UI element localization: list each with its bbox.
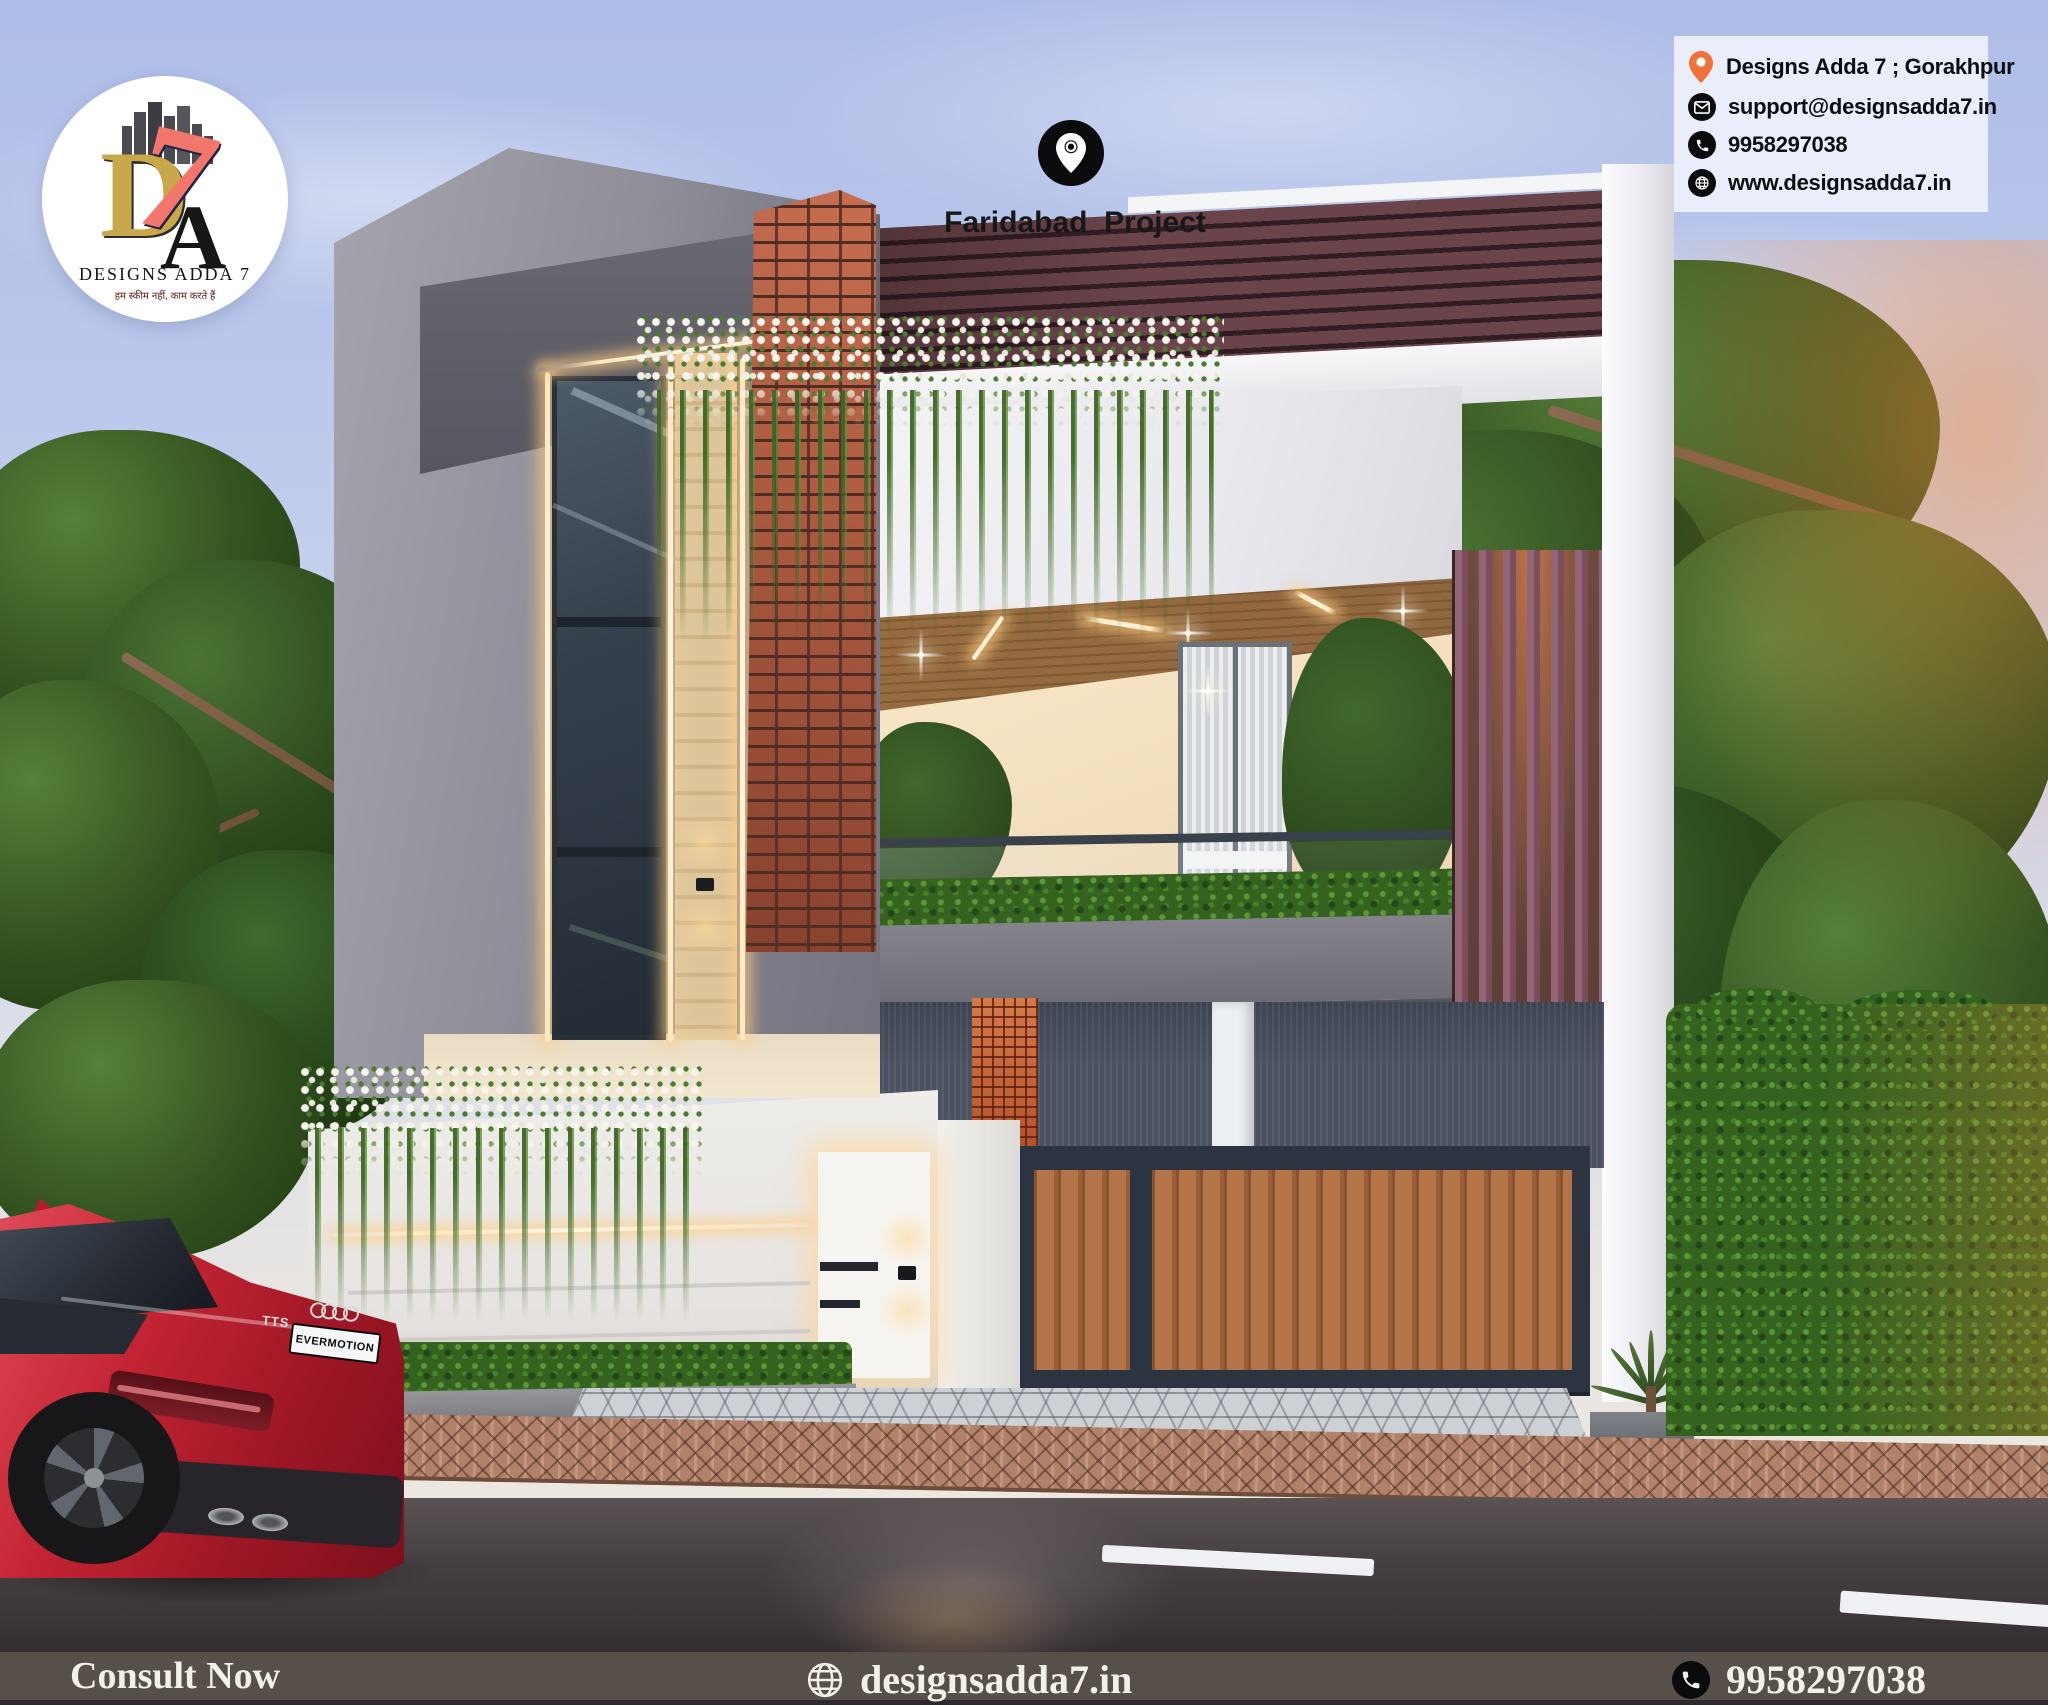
footer-website[interactable]: designsadda7.in (806, 1656, 1132, 1703)
project-pin-badge (1038, 120, 1104, 186)
window-led-strip (545, 372, 550, 1042)
contact-location-text: Designs Adda 7 ; Gorakhpur (1726, 54, 2014, 80)
license-plate-text: EVERMOTION (295, 1333, 375, 1355)
contact-phone-text: 9958297038 (1728, 132, 1847, 158)
footer-bar: Consult Now designsadda7.in 9958297038 (0, 1652, 2048, 1700)
wall-ivy-vines (306, 1128, 698, 1324)
brand-logo: D 7 A DESIGNS ADDA 7 हम स्कीम नहीं, काम … (42, 76, 288, 322)
location-pin-icon (1688, 51, 1714, 83)
right-hedge-wall (1666, 1004, 2048, 1436)
footer-website-text: designsadda7.in (860, 1656, 1132, 1703)
contact-location[interactable]: Designs Adda 7 ; Gorakhpur (1688, 51, 1980, 83)
logo-tagline: हम स्कीम नहीं, काम करते हैं (42, 288, 288, 302)
footer-phone[interactable]: 9958297038 (1672, 1656, 1926, 1703)
logo-name: DESIGNS ADDA 7 (42, 264, 288, 285)
wall-sconce (898, 1266, 916, 1280)
poster-canvas: TTS EVERMOTION Consult Now designsadda7.… (0, 0, 2048, 1705)
window-mullion (557, 617, 661, 627)
contact-phone[interactable]: 9958297038 (1688, 131, 1980, 159)
location-pin-icon (1054, 133, 1088, 173)
phone-icon (1688, 131, 1716, 159)
louver-panel (1452, 550, 1607, 1068)
project-label: Faridabad Project (890, 206, 1260, 240)
contact-card: Designs Adda 7 ; Gorakhpur support@desig… (1674, 36, 1988, 212)
right-corner-pillar (1602, 164, 1674, 1402)
footer-phone-text: 9958297038 (1726, 1656, 1926, 1703)
wall-slit (820, 1262, 878, 1271)
email-icon (1688, 93, 1716, 121)
lane-marking (1839, 1591, 2048, 1628)
footer-cta[interactable]: Consult Now (70, 1654, 280, 1698)
contact-website[interactable]: www.designsadda7.in (1688, 169, 1980, 197)
entry-white-pillar (1212, 1002, 1254, 1168)
globe-icon (1688, 169, 1716, 197)
contact-email-text: support@designsadda7.in (1728, 94, 1997, 120)
phone-icon (1672, 1661, 1710, 1699)
ivy-vines (648, 390, 1214, 648)
gate-frame[interactable] (1018, 1146, 1590, 1392)
car-wheel (8, 1392, 180, 1564)
contact-website-text: www.designsadda7.in (1728, 170, 1951, 196)
gate-pillar (934, 1120, 1020, 1396)
contact-email[interactable]: support@designsadda7.in (1688, 93, 1980, 121)
globe-icon (806, 1661, 844, 1699)
car-model-badge: TTS (261, 1313, 290, 1331)
